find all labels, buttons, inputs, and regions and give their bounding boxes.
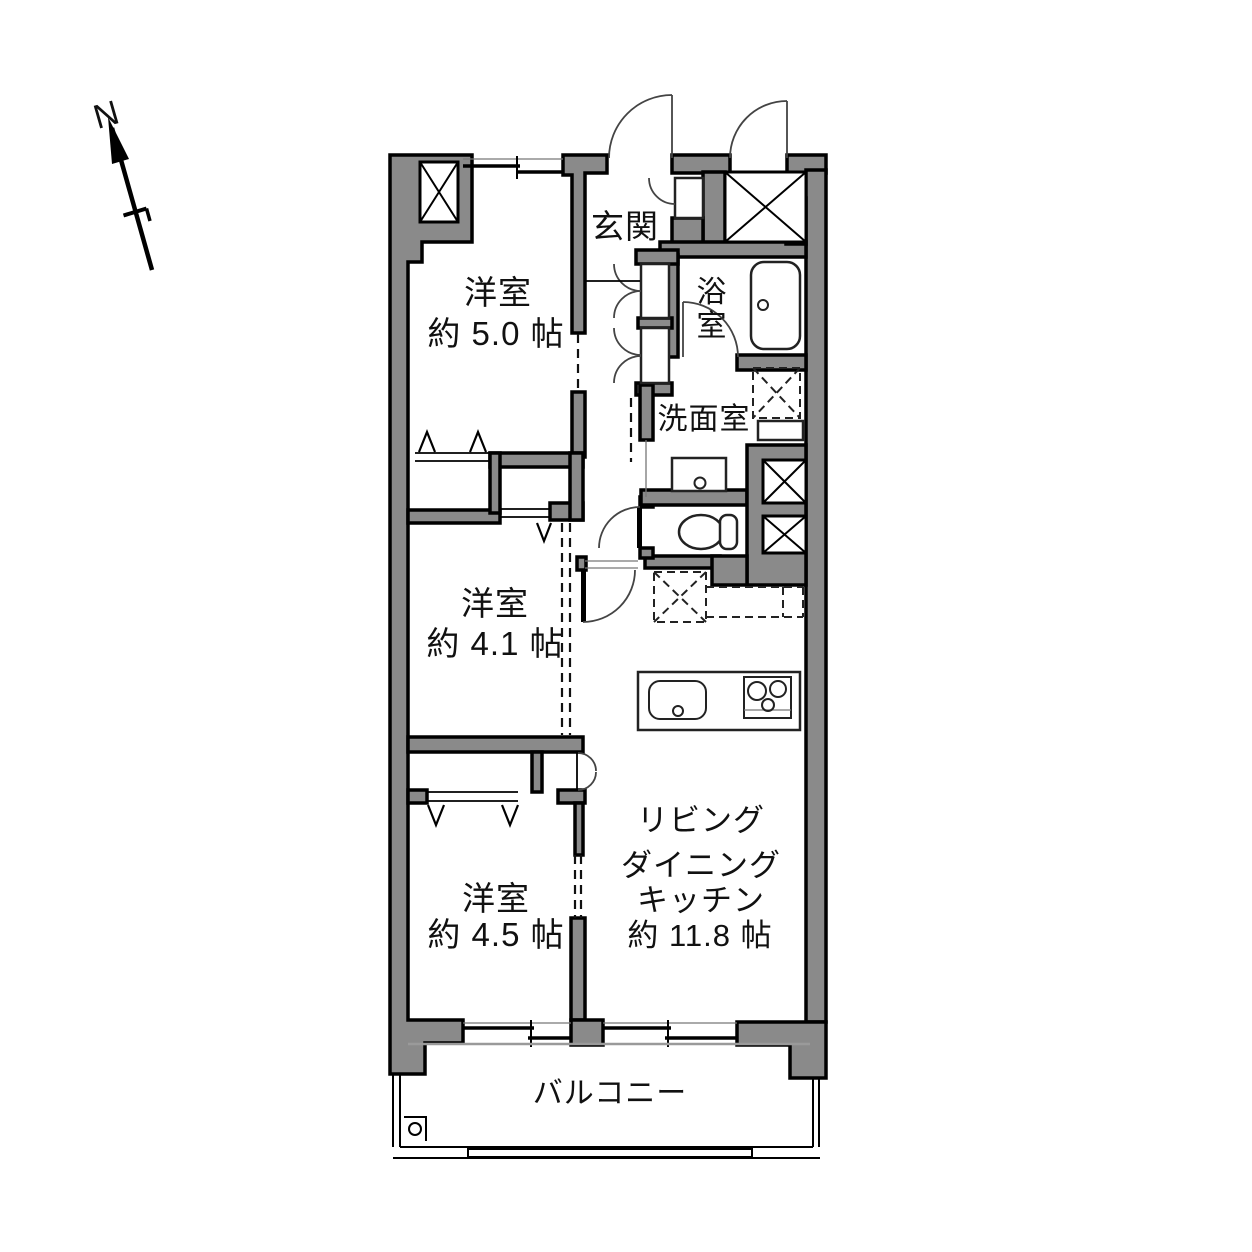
balcony-label: バルコニー bbox=[533, 1077, 687, 1110]
bathroom-label-char1: 浴 bbox=[697, 276, 728, 309]
wall-right-outer bbox=[806, 170, 826, 1022]
kitchen-cabinet-space bbox=[706, 587, 803, 617]
ldk-door-threshold bbox=[585, 561, 638, 568]
wall-toilet-bottom bbox=[645, 556, 720, 568]
refrigerator-x bbox=[654, 572, 706, 622]
wall-storage-top bbox=[636, 250, 678, 264]
balcony-drain bbox=[409, 1123, 421, 1135]
north-label: N bbox=[89, 94, 123, 137]
wall-storage45-bottom bbox=[558, 790, 585, 803]
wall-closet-divider bbox=[490, 453, 500, 513]
balcony-left-wall bbox=[393, 1074, 400, 1147]
balcony-railing bbox=[468, 1149, 752, 1157]
entrance-label: 玄関 bbox=[591, 208, 659, 245]
room-labels: 洋室 約 5.0 帖 洋室 約 4.1 帖 洋室 約 4.5 帖 リビング ダイ… bbox=[426, 208, 781, 1110]
hanger-mark bbox=[537, 523, 551, 541]
bedroom45-sliding-partition bbox=[575, 855, 581, 918]
hanger-mark bbox=[428, 805, 444, 825]
washroom-shelf bbox=[758, 421, 803, 440]
north-arrow: N bbox=[89, 94, 152, 270]
toilet-door-arc bbox=[599, 507, 640, 548]
toilet-bowl bbox=[679, 515, 723, 549]
ldk-name-line1: リビング bbox=[637, 803, 765, 838]
ldk-door-leaf bbox=[581, 570, 586, 622]
compass-tick-foot bbox=[147, 209, 151, 222]
washing-machine-x bbox=[753, 368, 800, 418]
shoe-cabinet-door-arc bbox=[649, 178, 675, 204]
balcony-right-wall bbox=[813, 1078, 819, 1147]
wall-closet1-bottom bbox=[408, 510, 500, 523]
ldk-name-line2: ダイニング bbox=[621, 848, 781, 883]
wall-toilet-hinge-stub bbox=[640, 548, 653, 558]
hanger-mark bbox=[419, 432, 435, 452]
wall-bottom-right-corner bbox=[737, 1022, 826, 1078]
wall-washroom-left-upper bbox=[640, 385, 653, 440]
washroom-label: 洗面室 bbox=[658, 403, 751, 436]
bedroom5-name: 洋室 bbox=[464, 274, 532, 311]
bedroom41-name: 洋室 bbox=[461, 585, 529, 622]
wall-ldk-door-stub bbox=[577, 557, 586, 570]
wall-bottom-mid-stub bbox=[571, 1020, 603, 1045]
ldk-name-line3: キッチン bbox=[637, 883, 765, 918]
ldk-size: 約 11.8 帖 bbox=[627, 918, 772, 953]
vanity-sink bbox=[672, 458, 726, 491]
wall-shoe-shaft bbox=[703, 172, 725, 245]
bedroom5-size: 約 5.0 帖 bbox=[427, 315, 564, 352]
bathroom-label-char2: 室 bbox=[697, 310, 728, 343]
floor-plan-page: N bbox=[0, 0, 1252, 1252]
ldk-door-arc bbox=[583, 570, 635, 622]
wall-toilet-step bbox=[712, 556, 747, 585]
wall-storage-mid bbox=[638, 318, 672, 328]
toilet-tank bbox=[720, 515, 737, 549]
closet2-front bbox=[500, 509, 550, 517]
wall-hall-left-lower bbox=[572, 392, 585, 457]
wall-partition45-lower bbox=[571, 918, 585, 1020]
bedroom45-name: 洋室 bbox=[462, 880, 530, 917]
wall-bath-top bbox=[660, 242, 806, 257]
bedroom41-size: 約 4.1 帖 bbox=[426, 625, 563, 662]
entrance-door-arc bbox=[609, 95, 672, 158]
hanger-mark bbox=[502, 805, 518, 825]
hanger-mark bbox=[470, 432, 486, 452]
wall-closet45-divider bbox=[532, 752, 542, 792]
meter-box-door-arc bbox=[730, 101, 787, 158]
hall-storage-upper bbox=[641, 264, 669, 318]
balcony-drain-corner bbox=[404, 1117, 426, 1141]
hall-storage-lower bbox=[641, 328, 669, 383]
hall-storage-lower-door-arcs bbox=[614, 328, 641, 383]
folding-door bbox=[578, 753, 596, 790]
wall-room41-bottom bbox=[408, 737, 583, 752]
bedroom45-size: 約 4.5 帖 bbox=[427, 916, 564, 953]
wall-partition45-upper bbox=[575, 803, 583, 855]
toilet-door-leaf bbox=[637, 507, 642, 548]
hall-storage-upper-door-arcs bbox=[614, 264, 641, 318]
floor-plan: N bbox=[0, 0, 1252, 1252]
refrigerator-space bbox=[654, 572, 706, 622]
closet1-front bbox=[415, 453, 490, 461]
wall-closet45-stub bbox=[408, 790, 427, 803]
closet45-front bbox=[427, 792, 518, 801]
shoe-cabinet bbox=[675, 178, 703, 218]
wall-corridor-mid bbox=[570, 453, 583, 520]
